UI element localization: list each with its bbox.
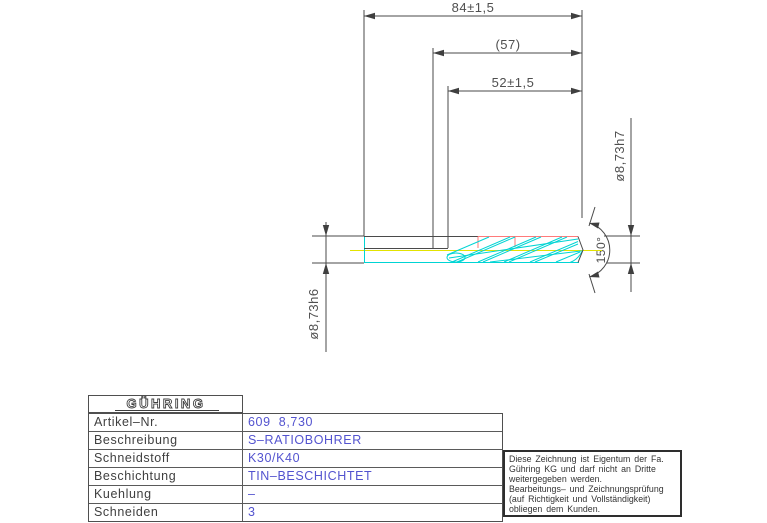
extension-lines — [364, 10, 582, 248]
length-dimension-lines — [364, 16, 582, 91]
table-row: Kuehlung – — [89, 485, 502, 503]
guehring-logo: GÜHRING — [89, 396, 242, 412]
logo-cell: GÜHRING — [88, 395, 243, 413]
row-label: Schneidstoff — [89, 450, 243, 467]
table-row: Schneidstoff K30/K40 — [89, 449, 502, 467]
dim-flute-length-label: 52±1,5 — [492, 75, 535, 90]
drawing-sheet: { "drawing": { "dim_total_length": "84±1… — [0, 0, 767, 523]
dim-total-length-label: 84±1,5 — [452, 0, 495, 15]
dim-shank-diameter-label: ø8,73h6 — [306, 288, 321, 339]
row-value: – — [243, 486, 502, 503]
row-value: 3 — [243, 504, 502, 521]
drill-body — [350, 236, 602, 263]
dim-ref-length-label: (57) — [495, 37, 520, 52]
dim-cut-diameter-label: ø8,73h7 — [612, 130, 627, 181]
spec-table: Artikel–Nr. 609 8,730 Beschreibung S–RAT… — [88, 413, 503, 522]
row-label: Beschreibung — [89, 432, 243, 449]
table-row: Schneiden 3 — [89, 503, 502, 521]
row-label: Schneiden — [89, 504, 243, 521]
row-value: S–RATIOBOHRER — [243, 432, 502, 449]
table-row: Artikel–Nr. 609 8,730 — [89, 414, 502, 431]
ownership-disclaimer: Diese Zeichnung ist Eigentum der Fa. Güh… — [503, 450, 682, 517]
guehring-logo-text: GÜHRING — [127, 396, 206, 411]
table-row: Beschichtung TIN–BESCHICHTET — [89, 467, 502, 485]
row-value: K30/K40 — [243, 450, 502, 467]
row-value: 609 8,730 — [243, 414, 502, 431]
drill-point — [578, 237, 583, 263]
table-row: Beschreibung S–RATIOBOHRER — [89, 431, 502, 449]
row-label: Kuehlung — [89, 486, 243, 503]
row-label: Beschichtung — [89, 468, 243, 485]
disclaimer-line: obliegen dem Kunden. — [509, 505, 676, 515]
row-label: Artikel–Nr. — [89, 414, 243, 431]
row-value: TIN–BESCHICHTET — [243, 468, 502, 485]
